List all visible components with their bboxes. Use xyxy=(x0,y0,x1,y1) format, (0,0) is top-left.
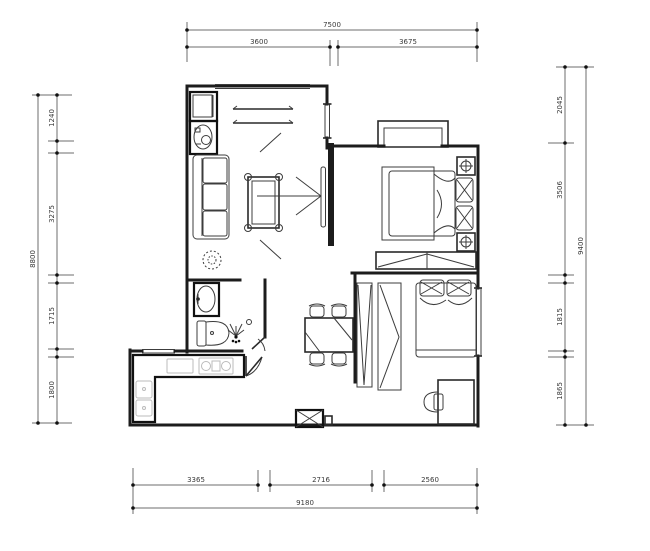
wardrobe xyxy=(376,252,476,269)
dining-chair xyxy=(309,353,325,366)
kitchen-sink xyxy=(136,381,152,416)
dim-left-seg-3: 1800 xyxy=(48,381,56,399)
floor-plan-canvas: 7500 3600 3675 3365 2716 2560 9180 xyxy=(0,0,650,551)
dim-top-total: 7500 xyxy=(323,21,341,29)
dimension-left: 1240 3275 1715 1800 8800 xyxy=(29,93,74,425)
shower-head xyxy=(228,324,244,343)
dim-left-seg-0: 1240 xyxy=(48,109,56,127)
nightstand-lamp xyxy=(457,157,475,175)
single-bed xyxy=(416,280,476,357)
dining-chair xyxy=(331,304,347,317)
pillow xyxy=(456,178,473,202)
tv-panel xyxy=(321,167,326,227)
dim-left-total: 8800 xyxy=(29,250,37,268)
sofa xyxy=(193,155,229,239)
dim-top-seg-0: 3600 xyxy=(250,38,268,46)
dim-top-seg-1: 3675 xyxy=(399,38,417,46)
pillow xyxy=(420,280,444,296)
pillow xyxy=(456,206,473,230)
bay-window xyxy=(378,121,448,147)
dim-right-seg-2: 1815 xyxy=(556,308,564,326)
window-living-right xyxy=(323,104,332,138)
door-swing xyxy=(252,337,265,351)
dim-bottom-total: 9180 xyxy=(296,499,314,507)
wardrobe xyxy=(357,283,372,387)
nightstand-lamp xyxy=(457,233,475,251)
dining-table xyxy=(305,318,353,352)
double-bed xyxy=(382,167,473,240)
plant xyxy=(203,251,221,269)
dim-bottom-seg-2: 2560 xyxy=(421,476,439,484)
dining-chair xyxy=(309,304,325,317)
window-kitchen-top xyxy=(142,350,175,354)
kitchen xyxy=(133,355,262,422)
pillow xyxy=(447,280,471,296)
dim-right-seg-0: 2045 xyxy=(556,96,564,114)
dimension-bottom: 3365 2716 2560 9180 xyxy=(131,468,479,514)
coffee-table xyxy=(245,174,283,232)
dim-left-seg-1: 3275 xyxy=(48,205,56,223)
dim-bottom-seg-1: 2716 xyxy=(312,476,330,484)
desk-chair xyxy=(424,392,443,412)
walls xyxy=(130,86,478,426)
kitchen-counter xyxy=(133,355,244,422)
bathroom xyxy=(194,283,265,351)
dining-area xyxy=(305,304,353,366)
bedroom-1 xyxy=(376,157,476,269)
door-swing xyxy=(246,356,262,376)
bathroom-sink xyxy=(194,283,219,316)
toilet xyxy=(197,321,229,346)
dimension-top: 7500 3600 3675 xyxy=(185,21,479,66)
dim-left-seg-2: 1715 xyxy=(48,307,56,325)
washing-machine xyxy=(190,92,217,154)
dim-right-seg-1: 3506 xyxy=(556,181,564,199)
wardrobe xyxy=(378,283,401,390)
floor-drain xyxy=(247,320,252,325)
dimension-right: 2045 3506 1815 1865 9400 xyxy=(548,65,594,427)
dim-right-total: 9400 xyxy=(577,237,585,255)
bedroom-2 xyxy=(357,280,476,424)
balcony-curtain-lines xyxy=(233,106,293,123)
tv-wall-arrow xyxy=(257,133,321,259)
dim-bottom-seg-0: 3365 xyxy=(187,476,205,484)
window-bedroom2-right xyxy=(474,288,482,356)
dining-chair xyxy=(331,353,347,366)
cutting-board xyxy=(167,359,193,373)
living-room xyxy=(190,92,326,269)
cooktop xyxy=(199,358,233,374)
dim-right-seg-3: 1865 xyxy=(556,382,564,400)
floor-plan-drawing: 7500 3600 3675 3365 2716 2560 9180 xyxy=(0,0,650,551)
